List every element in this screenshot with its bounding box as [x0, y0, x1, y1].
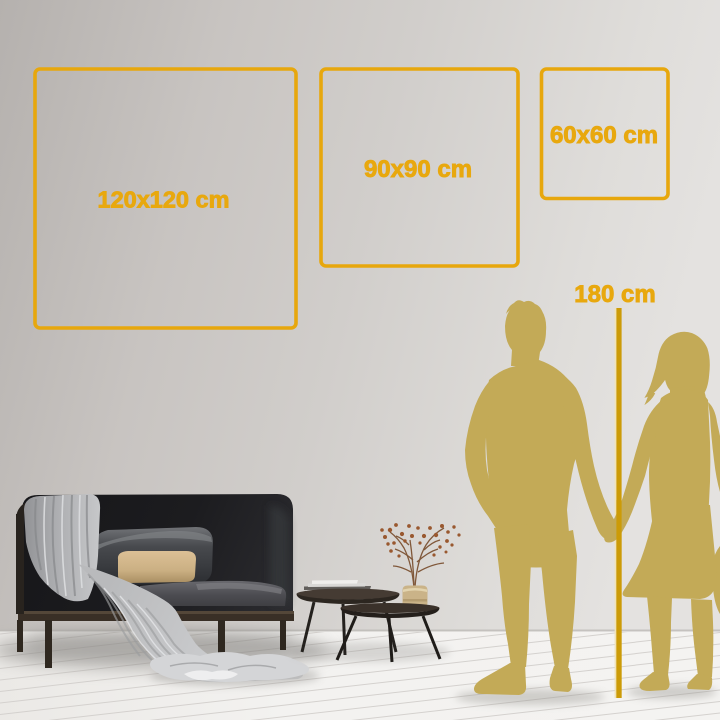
- svg-text:180 cm: 180 cm: [574, 281, 655, 308]
- svg-text:60x60 cm: 60x60 cm: [550, 122, 658, 149]
- svg-text:120x120 cm: 120x120 cm: [98, 187, 230, 213]
- svg-text:90x90 cm: 90x90 cm: [364, 156, 472, 183]
